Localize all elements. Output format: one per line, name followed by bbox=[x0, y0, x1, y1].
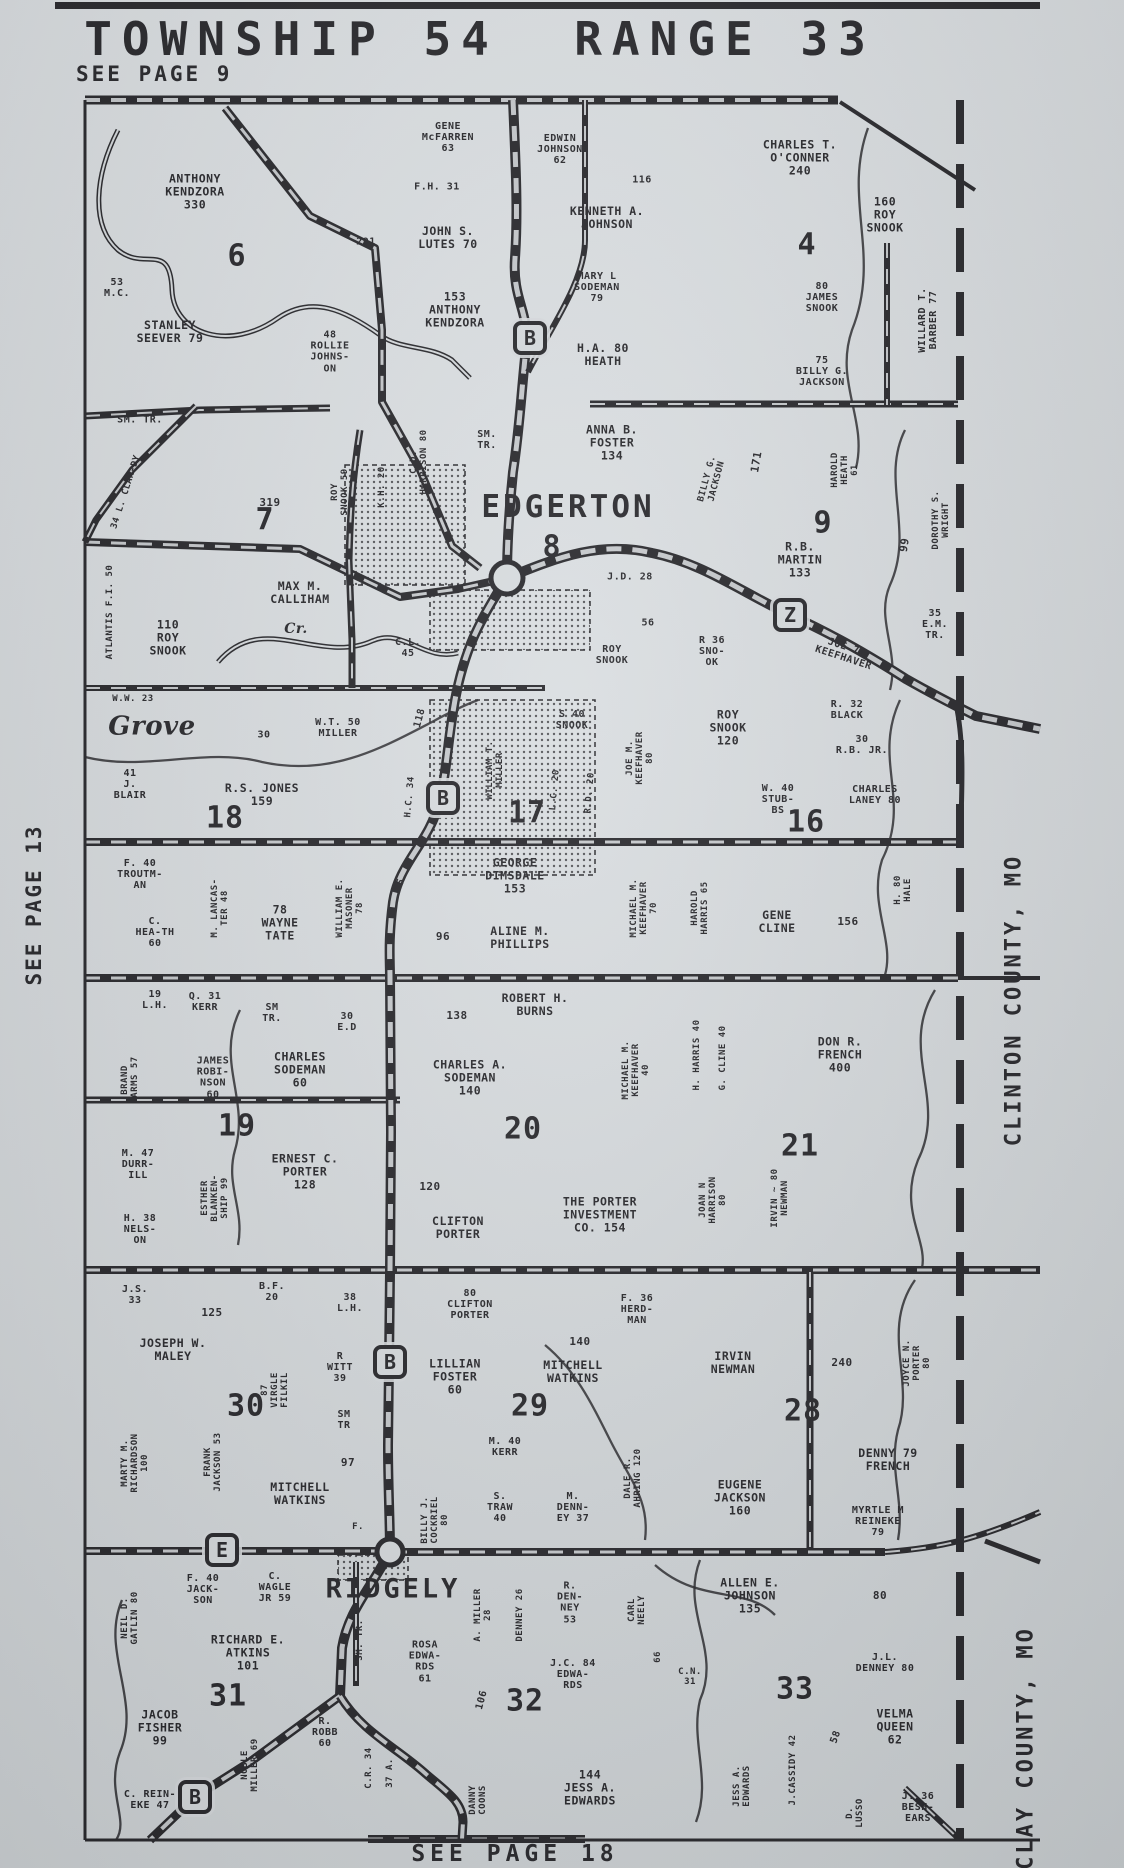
parcel-label: ESTHER BLANKEN- SHIP 99 bbox=[200, 1174, 230, 1221]
parcel-label: ROSA EDWA- RDS 61 bbox=[409, 1640, 442, 1685]
parcel-label: F.H. 31 bbox=[414, 181, 460, 192]
parcel-label: 153 ANTHONY KENDZORA bbox=[425, 291, 484, 330]
parcel-label: JOYCE N. PORTER 80 bbox=[902, 1339, 932, 1386]
parcel-label: 125 bbox=[201, 1307, 222, 1319]
parcel-label: 110 ROY SNOOK bbox=[149, 619, 186, 658]
parcel-label: H. 80 HALE bbox=[893, 875, 913, 905]
parcel-label: BILLY J. COCKRIEL 80 bbox=[420, 1496, 450, 1543]
parcel-label: CLIFTON PORTER bbox=[432, 1215, 484, 1241]
parcel-label: JESS A. EDWARDS bbox=[732, 1765, 752, 1806]
parcel-label: 56 bbox=[641, 617, 654, 628]
parcel-label: ERNEST C. PORTER 128 bbox=[272, 1153, 339, 1192]
parcel-label: 66 bbox=[653, 1651, 663, 1663]
parcel-label: SM. TR. bbox=[477, 429, 497, 451]
parcel-label: Q. 31 KERR bbox=[189, 991, 222, 1013]
parcel-label: 144 JESS A. EDWARDS bbox=[564, 1769, 616, 1808]
parcel-label: C.N. 31 bbox=[678, 1667, 702, 1687]
parcel-label: 30 bbox=[257, 729, 270, 740]
parcel-label: 78 WAYNE TATE bbox=[261, 904, 298, 943]
parcel-label: WILLARD T. BARBER 77 bbox=[917, 287, 939, 352]
parcel-label: D. LUSSO bbox=[845, 1798, 865, 1828]
parcel-label: 156 bbox=[837, 916, 858, 928]
parcel-label: R 36 SNO- OK bbox=[699, 635, 725, 669]
parcel-label: R.B. MARTIN 133 bbox=[778, 541, 823, 580]
creek bbox=[885, 430, 905, 690]
section-number-8: 8 bbox=[542, 530, 561, 565]
parcel-label: S. TRAW 40 bbox=[487, 1491, 513, 1525]
parcel-label: MAX M. CALLIHAM bbox=[270, 580, 329, 606]
parcel-label: ATLANTIS F.I. 50 bbox=[105, 565, 115, 660]
parcel-label: Cr. bbox=[284, 622, 308, 638]
parcel-label: CARL NEELY bbox=[627, 1595, 647, 1625]
parcel-label: THE PORTER INVESTMENT CO. 154 bbox=[563, 1196, 637, 1235]
parcel-label: G. CLINE 40 bbox=[718, 1025, 728, 1090]
section-number-4: 4 bbox=[797, 228, 816, 263]
parcel-label: 116 bbox=[632, 174, 652, 185]
section-number-16: 16 bbox=[787, 805, 825, 840]
parcel-label: HAROLD HEATH 61 bbox=[830, 452, 860, 488]
parcel-label: SM TR. bbox=[262, 1002, 282, 1024]
parcel-label: EUGENE JACKSON 160 bbox=[714, 1479, 766, 1518]
creek bbox=[895, 1280, 915, 1540]
parcel-label: MARY L SODEMAN 79 bbox=[574, 271, 620, 305]
section-number-17: 17 bbox=[508, 796, 546, 831]
parcel-label: JOHN S. LUTES 70 bbox=[418, 225, 477, 251]
parcel-label: A. MILLER 28 bbox=[473, 1588, 493, 1641]
section-number-31: 31 bbox=[209, 1679, 247, 1714]
parcel-label: DOROTHY S. WRIGHT bbox=[931, 490, 951, 549]
parcel-label: ALLEN E. JOHNSON 135 bbox=[720, 1577, 779, 1616]
parcel-label: CHARLES T. O'CONNER 240 bbox=[763, 139, 837, 178]
parcel-label: 30 R.B. JR. bbox=[836, 734, 888, 756]
parcel-label: H.A. 80 HEATH bbox=[577, 342, 629, 368]
creek bbox=[694, 1560, 706, 1822]
parcel-label: GENE CLINE bbox=[758, 909, 795, 935]
parcel-label: WILLIAM E. MASONER 78 bbox=[335, 878, 365, 937]
parcel-label: J.S. 33 bbox=[122, 1284, 148, 1306]
parcel-label: C. HEA-TH 60 bbox=[135, 916, 174, 950]
parcel-label: DANNY COONS bbox=[468, 1785, 488, 1815]
parcel-label: GENE McFARREN 63 bbox=[422, 121, 474, 155]
parcel-label: ROBERT H. BURNS bbox=[502, 992, 569, 1018]
parcel-label: 75 BILLY G. JACKSON bbox=[796, 355, 848, 389]
parcel-label: LILLIAN FOSTER 60 bbox=[429, 1358, 481, 1397]
parcel-label: ROY SNOOK bbox=[596, 644, 629, 666]
parcel-label: C.L. 45 bbox=[395, 637, 421, 659]
parcel-label: JACOB FISHER 99 bbox=[138, 1709, 183, 1748]
town-junction-circle bbox=[377, 1539, 403, 1565]
parcel-label: 80 CLIFTON PORTER bbox=[447, 1288, 493, 1322]
parcel-label: JOAN N HARRISON 80 bbox=[698, 1176, 728, 1223]
parcel-label: W.T. 50 MILLER bbox=[315, 717, 361, 739]
parcel-label: F. 40 TROUTM- AN bbox=[117, 858, 163, 892]
parcel-label: M. DENN- EY 37 bbox=[557, 1491, 590, 1525]
route-marker-Z: Z bbox=[773, 598, 807, 632]
parcel-label: DENNEY 26 bbox=[515, 1588, 525, 1641]
parcel-label: M. LANCAS- TER 48 bbox=[210, 878, 230, 937]
parcel-label: 37 A. bbox=[385, 1758, 395, 1788]
creek bbox=[911, 990, 935, 1268]
parcel-label: FRANK JACKSON 53 bbox=[203, 1432, 223, 1491]
parcel-label: 97 bbox=[341, 1457, 355, 1469]
parcel-label: 120 bbox=[419, 1181, 440, 1193]
parcel-label: ALINE M. PHILLIPS bbox=[490, 925, 549, 951]
parcel-label: H. 38 NELS- ON bbox=[124, 1213, 157, 1247]
plat-map: TOWNSHIP 54 RANGE 33 SEE PAGE 9 SEE PAGE… bbox=[0, 0, 1124, 1868]
parcel-label: J. 36 BESH- EARS bbox=[902, 1791, 935, 1825]
parcel-label: CHARLES SODEMAN 60 bbox=[274, 1051, 326, 1090]
parcel-label: H. HARRIS 40 bbox=[692, 1019, 702, 1090]
parcel-label: R. DEN- NEY 53 bbox=[557, 1581, 583, 1626]
parcel-label: M. 40 KERR bbox=[489, 1436, 522, 1458]
parcel-label: 80 bbox=[873, 1590, 887, 1602]
parcel-label: 160 ROY SNOOK bbox=[866, 196, 903, 235]
parcel-label: NOBLE MILLER 69 bbox=[240, 1738, 260, 1791]
section-number-33: 33 bbox=[776, 1672, 814, 1707]
town-label-ridgely: RIDGELY bbox=[326, 1574, 461, 1605]
parcel-label: 80 JAMES SNOOK bbox=[806, 281, 839, 315]
parcel-label: 53 M.C. bbox=[104, 277, 130, 299]
section-number-7: 7 bbox=[255, 503, 274, 538]
parcel-label: 48 ROLLIE JOHNS- ON bbox=[310, 330, 349, 375]
parcel-label: SM TR bbox=[337, 1409, 350, 1431]
route-marker-B: B bbox=[178, 1780, 212, 1814]
parcel-label: 30 E.D bbox=[337, 1011, 357, 1033]
parcel-label: RICHARD E. ATKINS 101 bbox=[211, 1634, 285, 1673]
parcel-label: 140 bbox=[569, 1336, 590, 1348]
parcel-label: 99 bbox=[898, 537, 913, 553]
parcel-label: C. REIN- EKE 47 bbox=[124, 1789, 176, 1811]
parcel-label: MARTY M. RICHARDSON 100 bbox=[120, 1433, 150, 1492]
parcel-label: ANTHONY KENDZORA 330 bbox=[165, 173, 224, 212]
parcel-label: J.D. 28 bbox=[607, 571, 653, 582]
route-marker-B: B bbox=[426, 781, 460, 815]
parcel-label: CHARLES LANEY 80 bbox=[849, 784, 901, 806]
parcel-label: F. bbox=[352, 1522, 364, 1532]
parcel-label: EDWIN JOHNSON 62 bbox=[537, 133, 583, 167]
parcel-label: 41 J. BLAIR bbox=[114, 768, 147, 802]
parcel-label: MYRTLE M REINEKE 79 bbox=[852, 1505, 904, 1539]
parcel-label: SM. TR. bbox=[117, 414, 163, 425]
parcel-label: VELMA QUEEN 62 bbox=[876, 1708, 913, 1747]
town-junction-circle bbox=[491, 562, 523, 594]
route-marker-B: B bbox=[373, 1345, 407, 1379]
creek bbox=[847, 128, 868, 468]
section-number-9: 9 bbox=[813, 506, 832, 541]
parcel-label: C.R. 34 bbox=[364, 1747, 374, 1788]
parcel-label: J.CASSIDY 42 bbox=[788, 1734, 798, 1805]
parcel-label: MICHAEL M. KEEFHAVER 40 bbox=[621, 1040, 651, 1099]
section-number-21: 21 bbox=[781, 1129, 819, 1164]
parcel-label: 19 L.H. bbox=[142, 989, 168, 1011]
parcel-label: SM. TR. bbox=[355, 1619, 365, 1660]
parcel-label: B.F. 20 bbox=[259, 1281, 285, 1303]
section-number-20: 20 bbox=[504, 1112, 542, 1147]
parcel-label: ROY SNOOK 120 bbox=[709, 709, 746, 748]
road bbox=[840, 102, 975, 190]
parcel-label: NEIL D. GATLIN 80 bbox=[120, 1591, 140, 1644]
parcel-label: STANLEY SEEVER 79 bbox=[137, 319, 204, 345]
parcel-label: S 40 SNOOK bbox=[556, 709, 589, 731]
section-number-28: 28 bbox=[784, 1394, 822, 1429]
parcel-label: F. 36 HERD- MAN bbox=[621, 1293, 654, 1327]
parcel-label: MICHAEL M. KEEFHAVER 70 bbox=[629, 878, 659, 937]
section-number-32: 32 bbox=[506, 1684, 544, 1719]
parcel-label: 240 bbox=[831, 1357, 852, 1369]
town-label-edgerton: EDGERTON bbox=[481, 489, 654, 525]
parcel-label: MITCHELL WATKINS bbox=[543, 1359, 602, 1385]
parcel-label: ANNA B. FOSTER 134 bbox=[586, 424, 638, 463]
parcel-label: JOE M. KEEFHAVER 80 bbox=[625, 731, 655, 784]
parcel-label: BRAND FARMS 57 bbox=[120, 1056, 140, 1103]
parcel-label: C.D. HARRISON 80 bbox=[409, 429, 429, 494]
parcel-label: C. WAGLE JR 59 bbox=[259, 1571, 292, 1605]
road bbox=[985, 1541, 1040, 1562]
parcel-label: DON R. FRENCH 400 bbox=[818, 1036, 863, 1075]
parcel-label: R. ROBB 60 bbox=[312, 1716, 338, 1750]
parcel-label: 96 bbox=[436, 931, 450, 943]
section-number-29: 29 bbox=[511, 1389, 549, 1424]
parcel-label: MITCHELL WATKINS bbox=[270, 1481, 329, 1507]
parcel-label: F. 40 JACK- SON bbox=[187, 1573, 220, 1607]
road bbox=[85, 406, 196, 542]
parcel-label: J.C. 84 EDWA- RDS bbox=[550, 1658, 596, 1692]
parcel-label: DALE R. AHRING 120 bbox=[623, 1448, 643, 1507]
parcel-label: 138 bbox=[446, 1010, 467, 1022]
parcel-label: 38 L.H. bbox=[337, 1292, 363, 1314]
parcel-label: DENNY 79 FRENCH bbox=[858, 1447, 917, 1473]
parcel-label: IRVIN NEWMAN bbox=[711, 1350, 756, 1376]
parcel-label: KENNETH A. JOHNSON bbox=[570, 205, 644, 231]
parcel-label: K.H. 20 bbox=[377, 466, 387, 507]
section-number-6: 6 bbox=[227, 239, 246, 274]
parcel-label: J.L. DENNEY 80 bbox=[856, 1652, 915, 1674]
parcel-label: WILLIAM T. MILLER bbox=[485, 740, 505, 799]
town-stipple-area bbox=[430, 590, 590, 650]
parcel-label: R WITT 39 bbox=[327, 1351, 353, 1385]
parcel-label: GEORGE DIMSDALE 153 bbox=[485, 857, 544, 896]
route-marker-B: B bbox=[513, 321, 547, 355]
parcel-label: 35 E.M. TR. bbox=[922, 608, 948, 642]
route-marker-E: E bbox=[205, 1533, 239, 1567]
parcel-label: HAROLD HARRIS 65 bbox=[690, 881, 710, 934]
parcel-label: CHARLES A. SODEMAN 140 bbox=[433, 1059, 507, 1098]
section-number-19: 19 bbox=[218, 1109, 256, 1144]
parcel-label: Grove bbox=[108, 712, 195, 741]
section-number-18: 18 bbox=[206, 801, 244, 836]
parcel-label: ROY SNOOK 59 bbox=[330, 468, 350, 515]
parcel-label: W.W. 23 bbox=[112, 694, 153, 704]
parcel-label: 291 bbox=[356, 236, 376, 247]
parcel-label: JOSEPH W. MALEY bbox=[140, 1337, 207, 1363]
parcel-label: M. 47 DURR- ILL bbox=[122, 1148, 155, 1182]
parcel-label: IRVIN ~ 80 NEWMAN bbox=[770, 1168, 790, 1227]
section-number-30: 30 bbox=[227, 1389, 265, 1424]
parcel-label: R. 32 BLACK bbox=[831, 699, 864, 721]
parcel-label: JAMES ROBI- NSON 60 bbox=[197, 1056, 230, 1101]
